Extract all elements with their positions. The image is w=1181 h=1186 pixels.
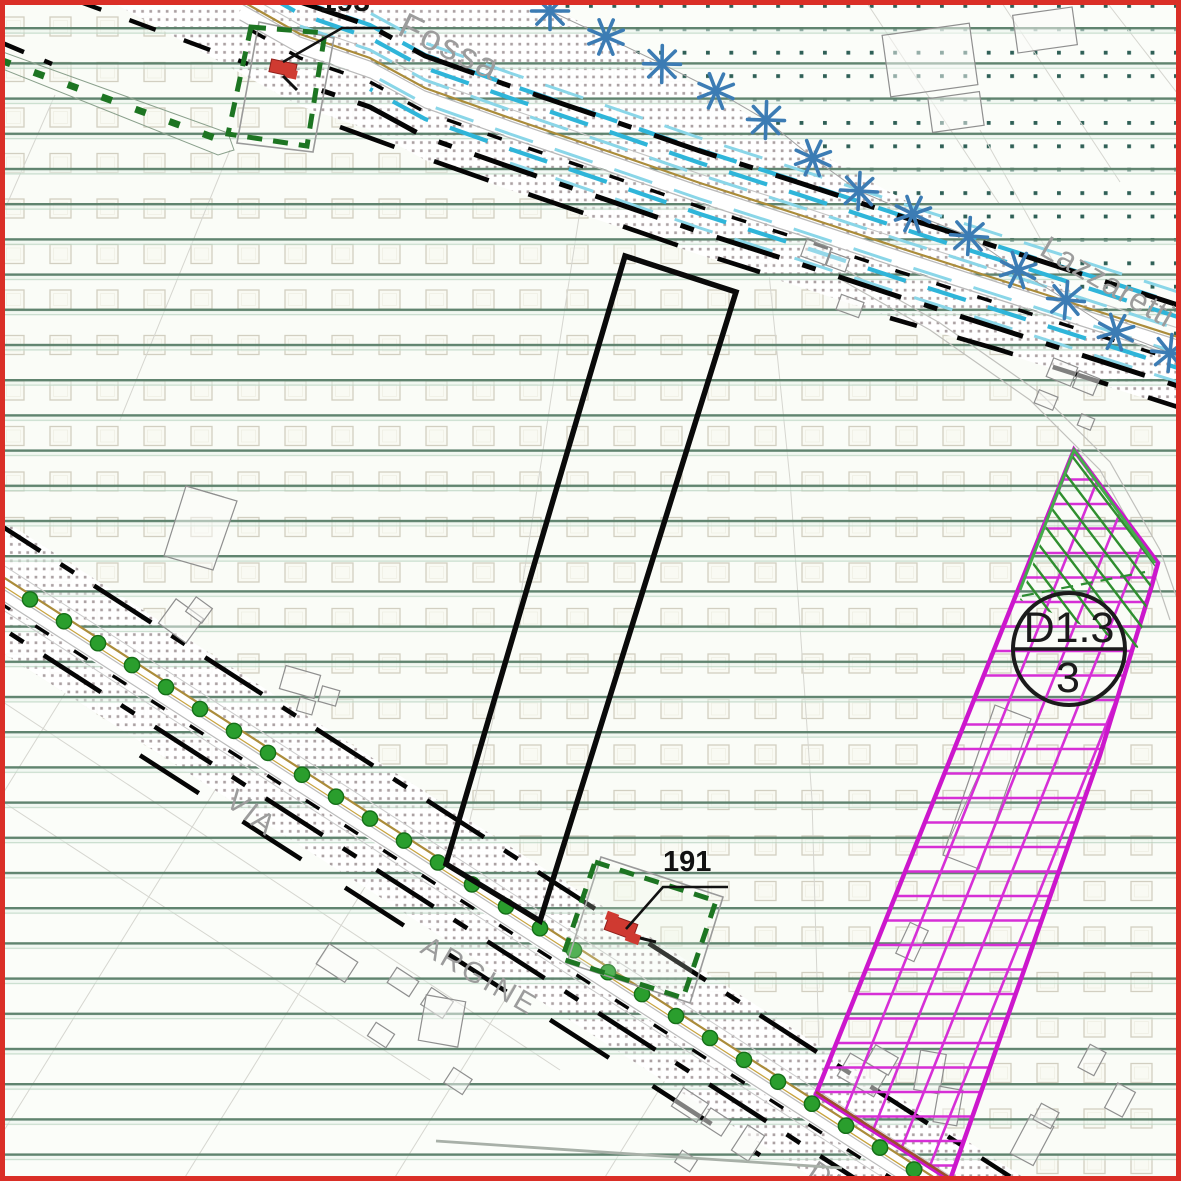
svg-text:D1.3: D1.3 (1024, 604, 1115, 652)
svg-text:3: 3 (1056, 654, 1080, 702)
svg-text:191: 191 (663, 846, 711, 878)
